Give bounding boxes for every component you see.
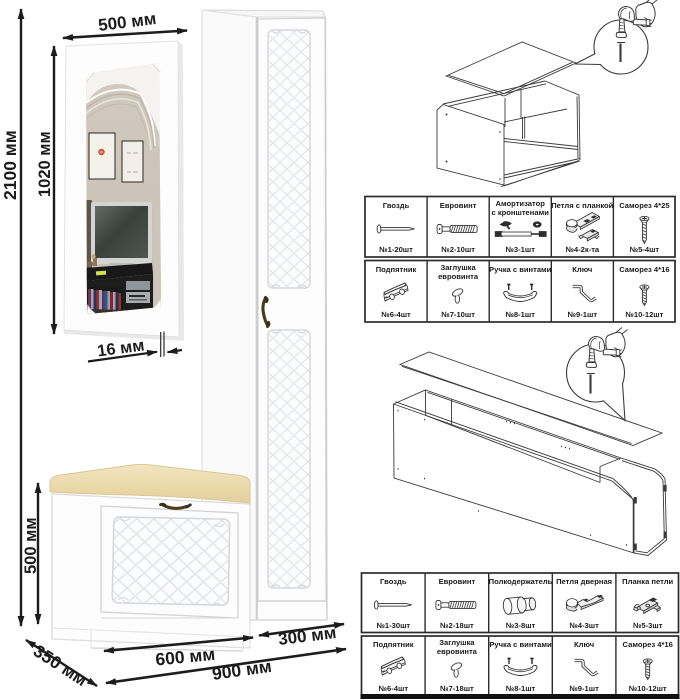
svg-text:евровинта: евровинта xyxy=(437,647,478,656)
svg-text:Ключ: Ключ xyxy=(572,265,592,274)
svg-text:Подпятник: Подпятник xyxy=(373,640,414,649)
svg-text:Гвоздь: Гвоздь xyxy=(380,577,407,586)
svg-text:№1-20шт: №1-20шт xyxy=(379,245,413,254)
svg-text:Заглушка: Заглушка xyxy=(440,263,476,272)
svg-text:№4-2к-та: №4-2к-та xyxy=(565,245,599,254)
svg-text:Саморез 4*25: Саморез 4*25 xyxy=(619,201,670,210)
svg-text:№5-3шт: №5-3шт xyxy=(633,621,663,630)
svg-text:Евровинт: Евровинт xyxy=(440,201,477,210)
svg-text:№1-30шт: №1-30шт xyxy=(376,621,410,630)
svg-text:Ручка с винтами: Ручка с винтами xyxy=(489,265,552,274)
svg-text:Петля с планкой: Петля с планкой xyxy=(551,201,613,210)
svg-text:№3-8шт: №3-8шт xyxy=(506,621,536,630)
svg-text:500 мм: 500 мм xyxy=(22,517,40,574)
svg-text:1020 мм: 1020 мм xyxy=(36,131,54,197)
svg-text:№3-1шт: №3-1шт xyxy=(505,245,535,254)
svg-text:№2-18шт: №2-18шт xyxy=(440,621,474,630)
svg-text:Заглушка: Заглушка xyxy=(439,638,475,647)
svg-text:№8-1шт: №8-1шт xyxy=(506,684,536,693)
svg-text:Подпятник: Подпятник xyxy=(376,265,417,274)
svg-text:№4-3шт: №4-3шт xyxy=(569,621,599,630)
svg-text:№10-12шт: №10-12шт xyxy=(629,684,667,693)
svg-text:Петля дверная: Петля дверная xyxy=(556,577,612,586)
svg-text:Амортизатор: Амортизатор xyxy=(496,199,546,208)
svg-text:№6-4шт: №6-4шт xyxy=(381,310,411,319)
svg-text:№9-1шт: №9-1шт xyxy=(568,310,598,319)
svg-text:№5-4шт: №5-4шт xyxy=(630,245,660,254)
svg-text:с кронштенами: с кронштенами xyxy=(492,208,550,217)
svg-text:№9-1шт: №9-1шт xyxy=(569,684,599,693)
svg-text:Ключ: Ключ xyxy=(574,640,594,649)
svg-text:№7-10шт: №7-10шт xyxy=(441,310,475,319)
svg-text:2100 мм: 2100 мм xyxy=(0,130,20,200)
svg-text:евровинта: евровинта xyxy=(438,272,479,281)
svg-text:№8-1шт: №8-1шт xyxy=(505,310,535,319)
svg-text:№2-10шт: №2-10шт xyxy=(441,245,475,254)
svg-text:№6-4шт: №6-4шт xyxy=(379,684,409,693)
svg-text:Гвоздь: Гвоздь xyxy=(383,201,410,210)
svg-text:Саморез 4*16: Саморез 4*16 xyxy=(619,265,669,274)
svg-text:№10-12шт: №10-12шт xyxy=(625,310,663,319)
svg-text:Полкодержатель: Полкодержатель xyxy=(489,577,553,586)
svg-text:№7-18шт: №7-18шт xyxy=(440,684,474,693)
svg-text:Евровинт: Евровинт xyxy=(439,577,476,586)
svg-text:Саморез 4*16: Саморез 4*16 xyxy=(623,640,673,649)
svg-text:Планка петли: Планка петли xyxy=(622,577,673,586)
svg-text:Ручка с винтами: Ручка с винтами xyxy=(489,640,552,649)
